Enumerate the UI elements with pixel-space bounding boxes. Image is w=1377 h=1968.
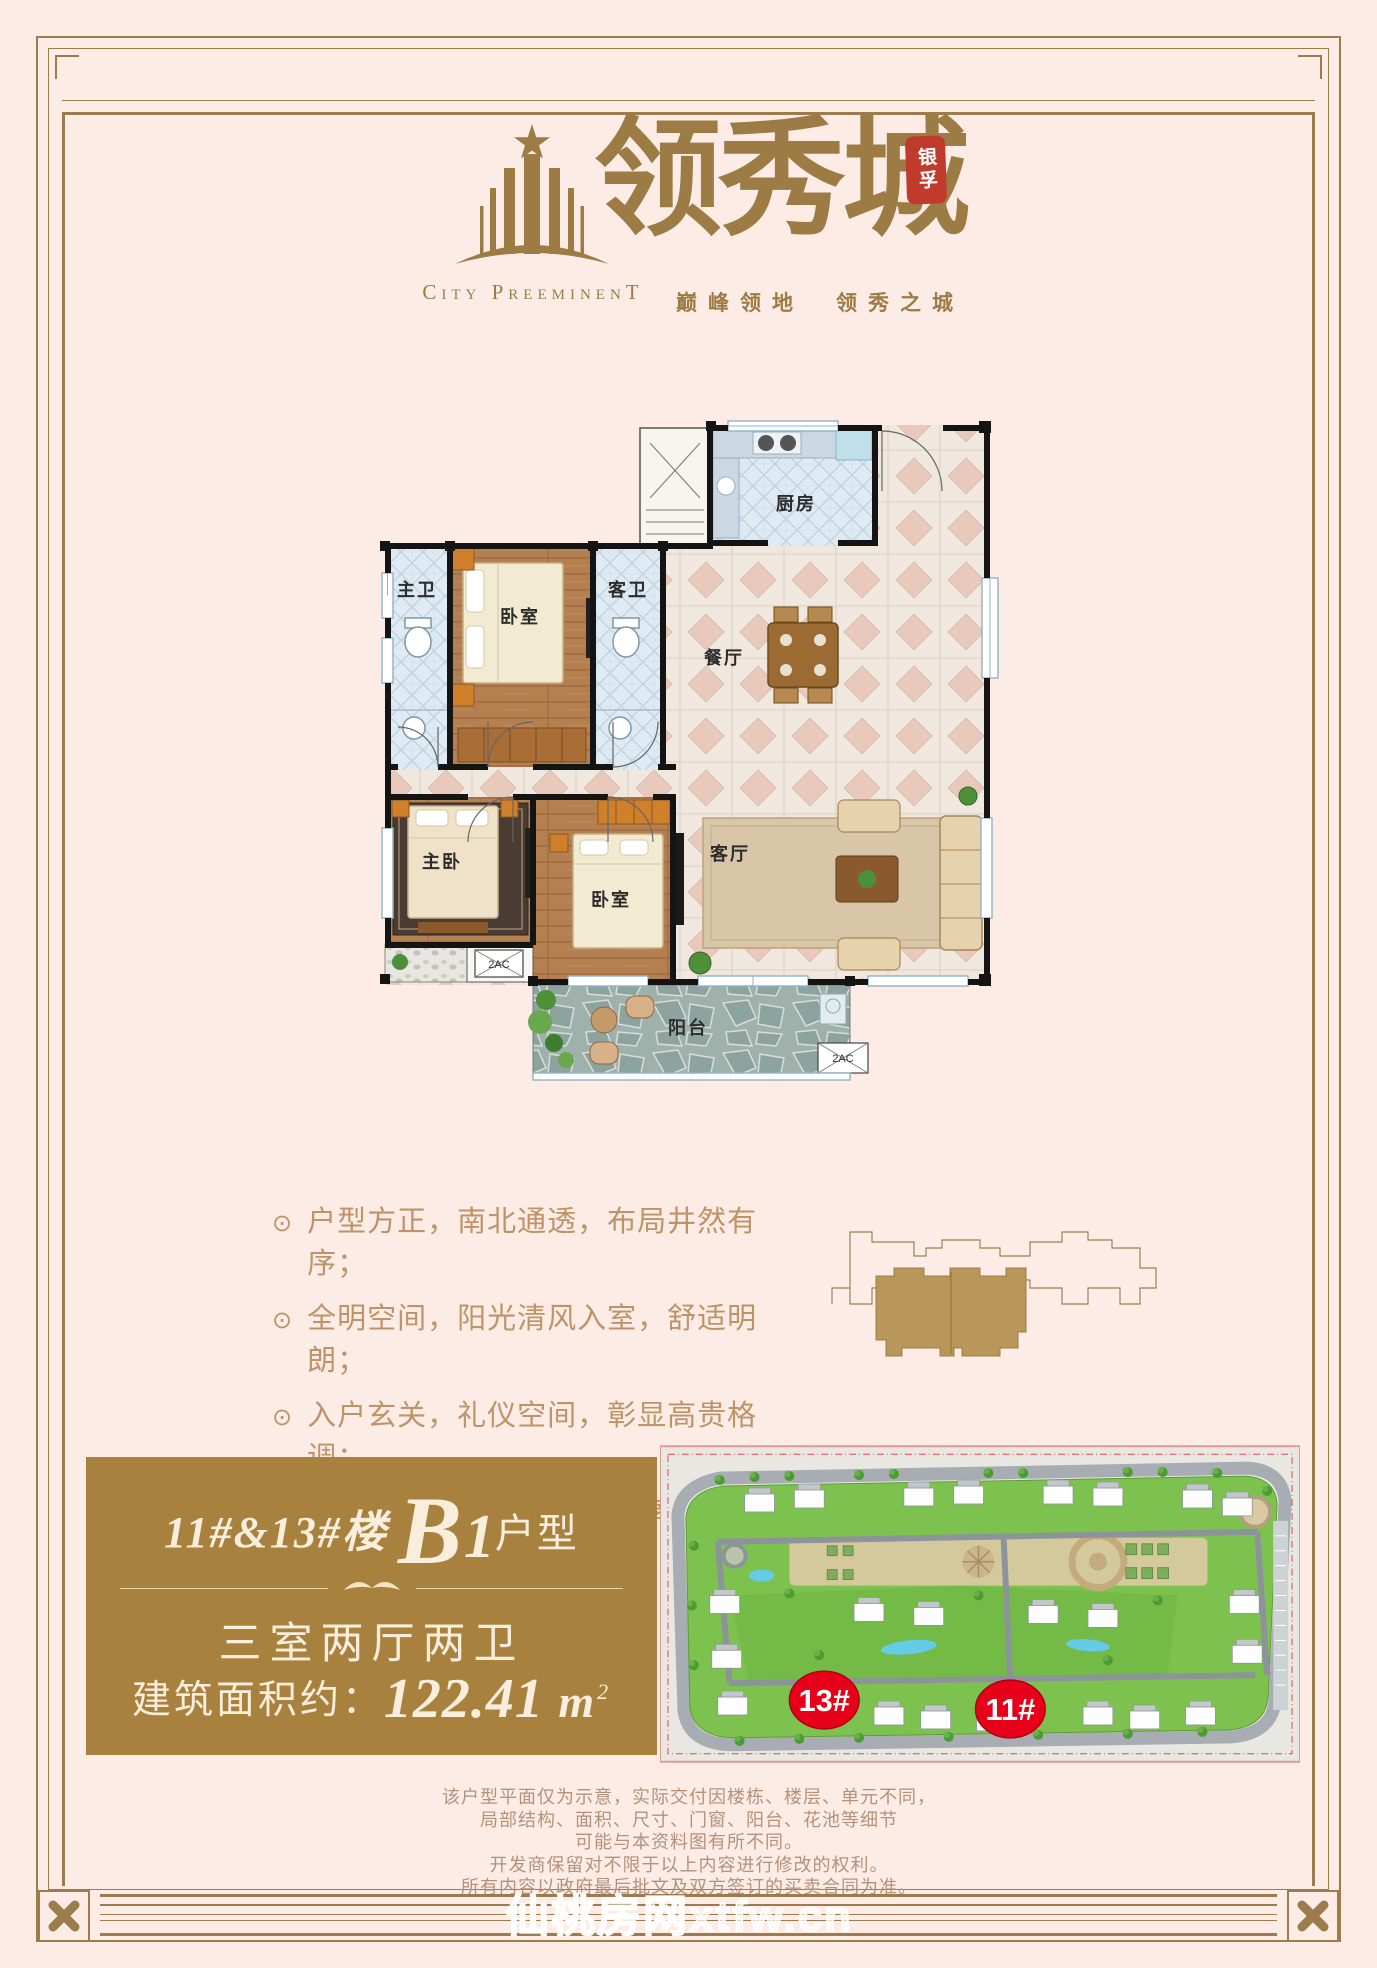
- area-sup: 2: [597, 1679, 611, 1704]
- label-master-bedroom: 主卧: [422, 851, 462, 872]
- ac-label: 2AC: [832, 1053, 853, 1065]
- label-bedroom2: 卧室: [500, 606, 540, 627]
- site-map: 13# 11#: [660, 1445, 1300, 1763]
- bullet-icon: ⊙: [272, 1306, 293, 1335]
- logo-slogan: 巅峰领地 领秀之城: [676, 287, 964, 317]
- frame-corner-ornament: [1298, 55, 1322, 79]
- marker-11: 11#: [976, 1680, 1046, 1738]
- unit-title: 11#&13#楼B1户型: [86, 1475, 657, 1586]
- label-living: 客厅: [710, 843, 750, 864]
- marker-11-label: 11#: [985, 1692, 1035, 1727]
- unit-type-letter: B: [398, 1477, 462, 1584]
- cross-icon: [40, 1892, 88, 1940]
- marker-13-label: 13#: [798, 1683, 849, 1718]
- frame-corner-ornament: [55, 55, 79, 79]
- label-bedroom3: 卧室: [591, 889, 631, 910]
- label-dining: 餐厅: [703, 647, 744, 668]
- bird-ornament-icon: [342, 1581, 402, 1595]
- bullet-icon: ⊙: [272, 1209, 293, 1238]
- unit-type-suffix: 户型: [495, 1511, 579, 1556]
- stair-shaft: [640, 428, 710, 546]
- unit-type-number: 1: [464, 1503, 495, 1571]
- logo-building-icon: [452, 118, 612, 270]
- feature-text: 全明空间，阳光清风入室，舒适明朗；: [307, 1295, 792, 1379]
- corner-cross-box: [1287, 1890, 1339, 1942]
- feature-text: 户型方正，南北通透，布局井然有序；: [307, 1198, 792, 1282]
- banner-divider: [120, 1581, 623, 1595]
- disclaimer-line: 开发商保留对不限于以上内容进行修改的权利。: [339, 1854, 1039, 1877]
- marker-13: 13#: [789, 1671, 859, 1729]
- site-watermark: 仙桃房网xtfw.cn: [505, 1880, 853, 1944]
- corner-cross-box: [38, 1890, 90, 1942]
- feature-item: ⊙ 全明空间，阳光清风入室，舒适明朗；: [272, 1295, 792, 1379]
- area-prefix: 建筑面积约：: [132, 1679, 384, 1722]
- unit-banner: 11#&13#楼B1户型 三室两厅两卫 建筑面积约：122.41 m2: [86, 1457, 657, 1755]
- disclaimer-line: 可能与本资料图有所不同。: [339, 1831, 1039, 1854]
- building-number: 11#&13#楼: [164, 1508, 388, 1557]
- star-icon: [514, 124, 550, 159]
- area-unit: m: [544, 1676, 597, 1727]
- disclaimer-line: 局部结构、面积、尺寸、门窗、阳台、花池等细节: [339, 1809, 1039, 1832]
- poster-page: City PreeminenT 领秀城 银孚 巅峰领地 领秀之城: [0, 0, 1377, 1968]
- seal-text: 银孚: [912, 147, 941, 194]
- brand-seal: 银孚: [905, 135, 947, 204]
- built-area: 建筑面积约：122.41 m2: [86, 1667, 657, 1731]
- disclaimer-line: 该户型平面仅为示意，实际交付因楼栋、楼层、单元不同，: [339, 1786, 1039, 1809]
- room-count: 三室两厅两卫: [86, 1609, 657, 1671]
- floor-plan: 2AC 2AC: [368, 398, 1008, 1168]
- building-key-plan: [830, 1192, 1160, 1367]
- ac-label: 2AC: [488, 959, 509, 971]
- label-balcony: 阳台: [668, 1017, 708, 1038]
- cross-icon: [1289, 1892, 1337, 1940]
- label-guest-bath: 客卫: [608, 579, 648, 600]
- bullet-icon: ⊙: [272, 1403, 293, 1432]
- feature-item: ⊙ 户型方正，南北通透，布局井然有序；: [272, 1198, 792, 1282]
- label-kitchen: 厨房: [776, 493, 816, 514]
- label-master-bath: 主卫: [397, 579, 437, 600]
- area-value: 122.41: [384, 1668, 544, 1730]
- logo-en-name: City PreeminenT: [408, 280, 658, 305]
